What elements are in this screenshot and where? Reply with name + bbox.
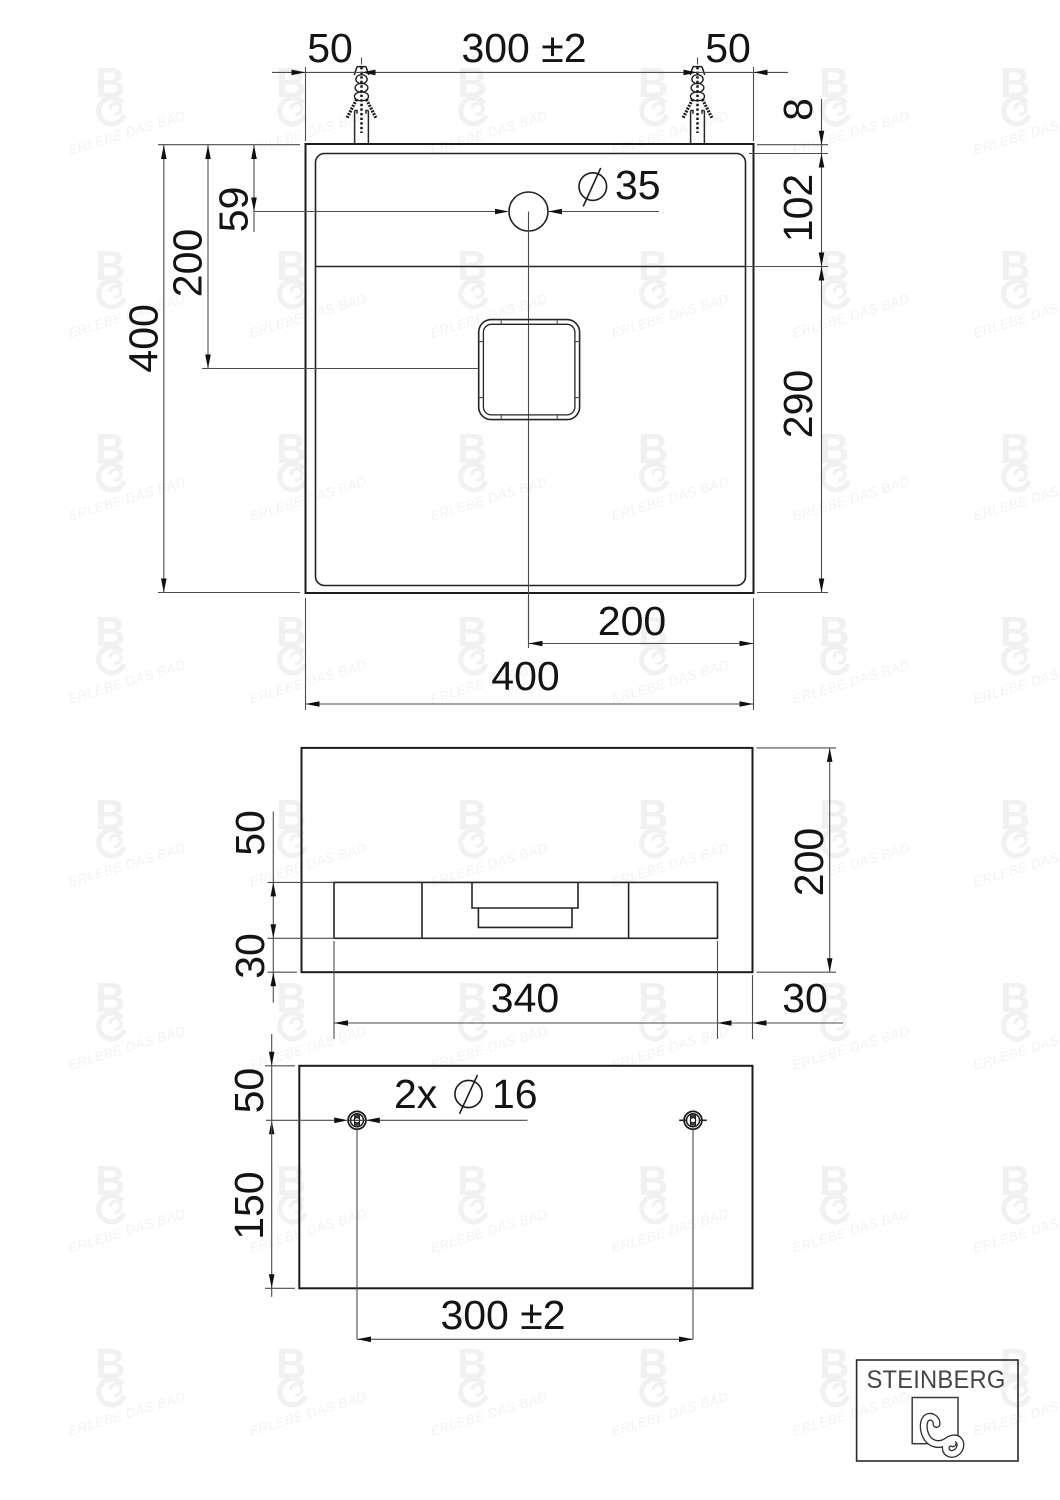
svg-text:200: 200 (598, 598, 666, 644)
svg-text:50: 50 (227, 810, 273, 856)
svg-text:30: 30 (782, 975, 828, 1021)
svg-text:300 ±2: 300 ±2 (461, 25, 586, 71)
svg-text:300 ±2: 300 ±2 (440, 1292, 565, 1338)
svg-text:35: 35 (615, 162, 661, 208)
svg-text:400: 400 (121, 304, 167, 372)
svg-text:STEINBERG: STEINBERG (867, 1366, 1006, 1394)
svg-text:50: 50 (307, 25, 353, 71)
svg-text:200: 200 (165, 229, 211, 297)
svg-text:400: 400 (491, 653, 559, 699)
svg-text:30: 30 (227, 933, 273, 979)
svg-text:50: 50 (226, 1068, 272, 1114)
svg-text:2x: 2x (394, 1071, 438, 1117)
svg-text:16: 16 (492, 1071, 538, 1117)
svg-text:290: 290 (775, 370, 821, 438)
svg-text:150: 150 (226, 1171, 272, 1239)
svg-text:50: 50 (705, 25, 751, 71)
svg-text:8: 8 (775, 98, 821, 121)
svg-text:102: 102 (775, 174, 821, 242)
svg-text:340: 340 (491, 975, 559, 1021)
svg-text:200: 200 (786, 828, 832, 896)
svg-text:59: 59 (211, 187, 257, 233)
